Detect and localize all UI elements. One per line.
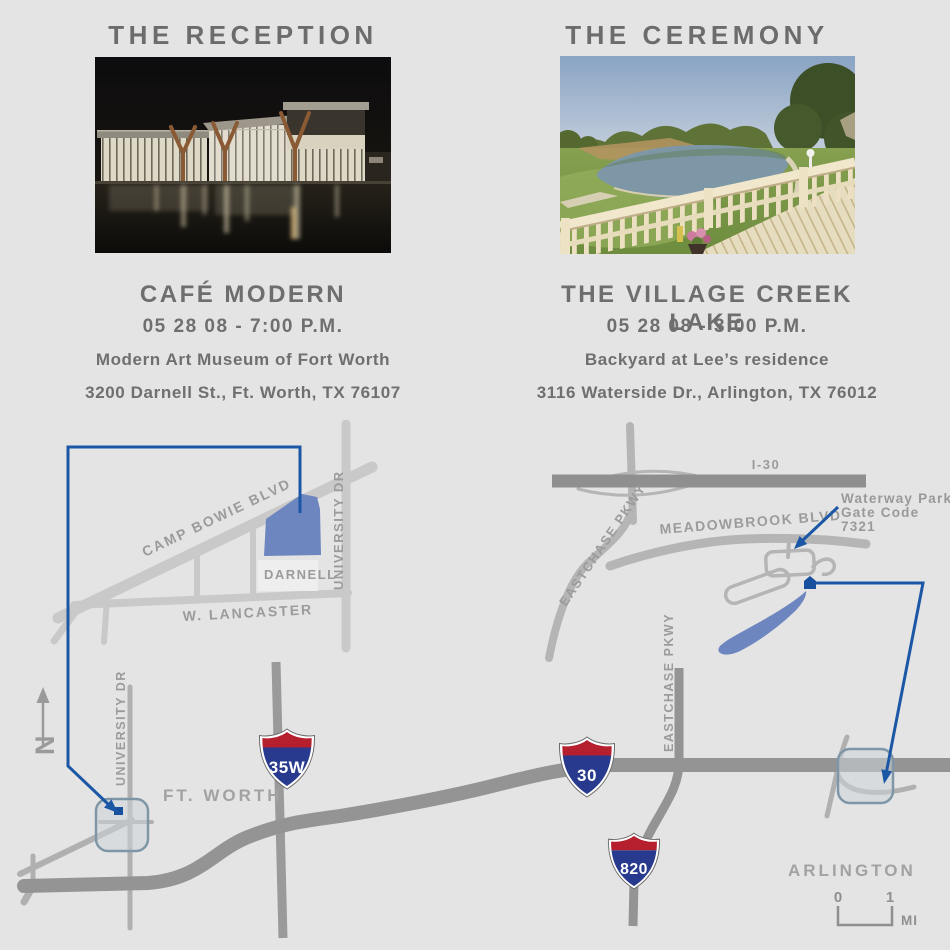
reception-address: 3200 Darnell St., Ft. Worth, TX 76107 <box>43 383 443 403</box>
reception-venue-detail: Modern Art Museum of Fort Worth <box>43 350 443 370</box>
shield-i35w: 35W <box>259 729 314 790</box>
ft-worth-label: FT. WORTH <box>163 786 283 805</box>
shield-i30: 30 <box>559 737 614 798</box>
reception-inset-map: CAMP BOWIE BLVD UNIVERSITY DR DARNELL W.… <box>54 424 372 648</box>
residence-marker <box>804 576 816 589</box>
arlington-label: ARLINGTON <box>788 861 916 880</box>
ceremony-photo <box>560 56 855 254</box>
darnell-label: DARNELL <box>264 567 337 582</box>
museum-site-polygon <box>264 494 321 556</box>
ceremony-venue-detail: Backyard at Lee’s residence <box>507 350 907 370</box>
north-arrow: N <box>30 687 60 755</box>
ceremony-heading: THE CEREMONY <box>547 20 847 51</box>
north-label: N <box>30 736 60 756</box>
callout-line3: 7321 <box>841 519 876 534</box>
w-lancaster-label: W. LANCASTER <box>182 601 313 624</box>
reception-photo <box>95 57 391 253</box>
i30-inset-label: I-30 <box>752 457 780 472</box>
svg-text:820: 820 <box>620 861 648 878</box>
ceremony-datetime: 05 28 08 - 3:00 P.M. <box>527 316 887 338</box>
ceremony-inset-map: I-30 EASTCHASE PKWY MEADOWBROOK BLVD Wat… <box>549 426 950 658</box>
reception-venue: CAFÉ MODERN <box>63 281 423 309</box>
scale-unit: MI <box>901 913 918 928</box>
reception-heading: THE RECEPTION <box>93 20 393 51</box>
village-creek-lake-polygon <box>718 591 806 655</box>
callout-line2: Gate Code <box>841 505 919 520</box>
scale-one: 1 <box>886 889 894 906</box>
waterway-park-loops <box>723 550 834 606</box>
wedding-directions-card: THE RECEPTION THE CEREMONY <box>0 0 950 950</box>
overview-map: 35W 30 820 FT. WORTH ARLINGTON UNIVERSIT… <box>20 613 950 938</box>
eastchase-inset-label: EASTCHASE PKWY <box>556 481 649 609</box>
svg-text:30: 30 <box>577 766 597 785</box>
svg-text:35W: 35W <box>269 758 306 777</box>
shield-i820: 820 <box>608 833 659 889</box>
callout-line1: Waterway Park <box>841 491 950 506</box>
reception-datetime: 05 28 08 - 7:00 P.M. <box>63 316 423 338</box>
university-dr-overview-label: UNIVERSITY DR <box>114 670 128 786</box>
meadowbrook-label: MEADOWBROOK BLVD <box>659 507 842 537</box>
maps-canvas: 35W 30 820 FT. WORTH ARLINGTON UNIVERSIT… <box>0 420 950 950</box>
reception-highlight-box <box>96 799 148 851</box>
scale-zero: 0 <box>834 889 842 906</box>
eastchase-overview-label: EASTCHASE PKWY <box>662 613 676 752</box>
overview-minor-roads <box>20 687 914 928</box>
ceremony-address: 3116 Waterside Dr., Arlington, TX 76012 <box>507 383 907 403</box>
scale-bar: 0 1 MI <box>834 889 918 928</box>
